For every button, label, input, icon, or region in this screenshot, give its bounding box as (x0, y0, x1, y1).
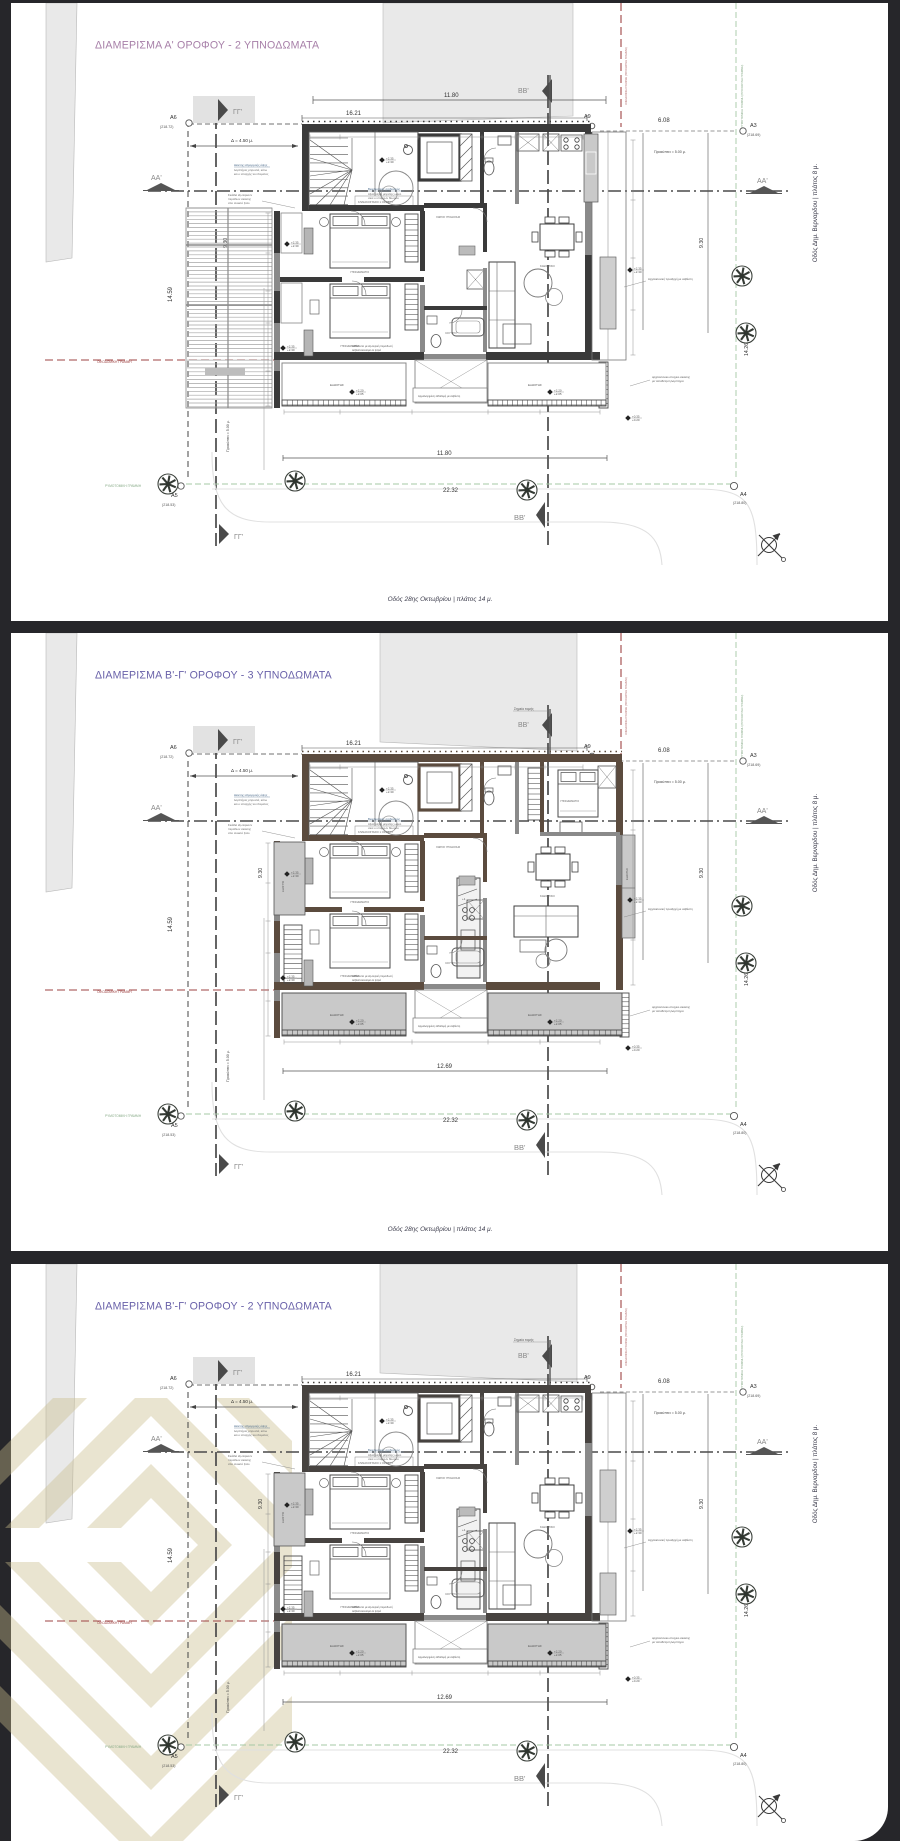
svg-text:Αρμολογημένη λιθοδομή με ασβέσ: Αρμολογημένη λιθοδομή με ασβέστη (418, 1024, 461, 1028)
svg-text:ΒΒ': ΒΒ' (518, 88, 529, 95)
svg-text:με τοποθετηση λαμπτηρα: με τοποθετηση λαμπτηρα (652, 379, 684, 383)
svg-text:σκια ο υπαρχων θεωρειο: σκια ο υπαρχων θεωρειο (368, 826, 399, 830)
svg-text:ασβεστοκονίαμα σε ψηλό: ασβεστοκονίαμα σε ψηλό (352, 1609, 382, 1613)
svg-text:ΕΞΩΣΤΗΣ: ΕΞΩΣΤΗΣ (282, 1511, 285, 1523)
svg-text:Α3: Α3 (750, 753, 757, 759)
svg-text:ΑΑ': ΑΑ' (151, 1436, 162, 1443)
svg-text:(218.80): (218.80) (733, 1762, 746, 1766)
svg-text:Α6: Α6 (170, 1376, 177, 1382)
svg-text:11.80: 11.80 (444, 93, 459, 99)
svg-text:+0.20: +0.20 (632, 1679, 640, 1683)
svg-text:και ο υπαρχής του δώματος: και ο υπαρχής του δώματος (234, 802, 269, 806)
svg-text:ΑΑ': ΑΑ' (757, 808, 768, 815)
svg-text:ΒΒ': ΒΒ' (514, 1143, 526, 1152)
svg-text:6.08: 6.08 (658, 1379, 670, 1385)
svg-text:ΡΥΜΟΤΟΜΙΚΗ ΓΡΑΜΜΗ (ΠΡΟΣΩΡΙΝΗ Γ: ΡΥΜΟΤΟΜΙΚΗ ΓΡΑΜΜΗ (ΠΡΟΣΩΡΙΝΗ ΓΡΑΜΜΗ) (740, 65, 744, 128)
svg-text:Οδός Δημ. Βερναρδου | πλάτος: Οδός Δημ. Βερναρδου | πλάτος 8 μ. (812, 164, 819, 263)
svg-text:14.59: 14.59 (168, 1547, 174, 1563)
svg-text:+2.05: +2.05 (554, 1653, 562, 1657)
svg-text:(218.69): (218.69) (747, 763, 760, 767)
svg-text:16.21: 16.21 (346, 741, 362, 747)
svg-text:+2.30: +2.30 (386, 160, 394, 164)
svg-text:+2.05: +2.05 (554, 392, 562, 396)
svg-text:ΡΥΜΟΤΟΜΙΚΗ ΓΡΑΜΜΗ: ΡΥΜΟΤΟΜΙΚΗ ΓΡΑΜΜΗ (105, 1114, 142, 1118)
svg-text:ΥΠΝΟΔΩΜΑΤΙΟ: ΥΠΝΟΔΩΜΑΤΙΟ (560, 799, 579, 803)
svg-text:9.30: 9.30 (699, 1499, 705, 1509)
svg-text:(218.69): (218.69) (747, 1394, 760, 1398)
svg-text:Βιοκλιματικός σχεδιασμός: Βιοκλιματικός σχεδιασμός (368, 1448, 401, 1452)
svg-text:και ο υπαρχής του δώματος: και ο υπαρχής του δώματος (234, 172, 269, 176)
svg-text:Α4: Α4 (740, 492, 747, 498)
svg-text:ΟΙΚΟΔΟΜΙΚΗ ΓΡΑΜΜΗ (ΠΡΟΣΩΡΙΝΗ Γ: ΟΙΚΟΔΟΜΙΚΗ ΓΡΑΜΜΗ (ΠΡΟΣΩΡΙΝΗ ΓΡΑΜΜΗ) (624, 47, 628, 105)
svg-text:9.30: 9.30 (258, 1499, 264, 1509)
svg-text:ΓΓ': ΓΓ' (234, 1795, 243, 1802)
svg-text:11.80: 11.80 (437, 451, 452, 457)
svg-text:ΓΓ': ΓΓ' (233, 1370, 242, 1377)
svg-text:Α9: Α9 (584, 1375, 591, 1381)
svg-text:ΡΥΜΟΤΟΜΙΚΗ ΓΡΑΜΜΗ (ΠΡΟΣΩΡΙΝΗ Γ: ΡΥΜΟΤΟΜΙΚΗ ΓΡΑΜΜΗ (ΠΡΟΣΩΡΙΝΗ ΓΡΑΜΜΗ) (740, 695, 744, 758)
svg-text:(218.80): (218.80) (733, 501, 746, 505)
svg-text:ΥΠΝΟΔΩΜΑΤΙΟ: ΥΠΝΟΔΩΜΑΤΙΟ (350, 900, 369, 904)
svg-text:ΚΑΘΙΣΤΙΚΟ: ΚΑΘΙΣΤΙΚΟ (540, 264, 556, 268)
svg-text:Προκύπτει = 5.00 μ.: Προκύπτει = 5.00 μ. (226, 1050, 230, 1082)
svg-text:Α3: Α3 (750, 123, 757, 129)
svg-text:Λιθόκτιστο με εξωτερική περσιδ: Λιθόκτιστο με εξωτερική περσιδωτή (352, 344, 393, 348)
svg-text:Προκύπτει = 5.00 μ.: Προκύπτει = 5.00 μ. (654, 780, 686, 784)
svg-text:+1: +1 (462, 897, 466, 901)
svg-text:(218.53): (218.53) (162, 1133, 175, 1137)
svg-text:Αρμολογημένη λιθοδομή με ασβέσ: Αρμολογημένη λιθοδομή με ασβέστη (418, 394, 461, 398)
svg-text:ΓΓ': ΓΓ' (234, 1164, 243, 1171)
svg-text:(218.53): (218.53) (162, 1764, 175, 1768)
svg-text:Α3: Α3 (750, 1384, 757, 1390)
svg-text:ΑΑ': ΑΑ' (151, 175, 162, 182)
svg-text:9.30: 9.30 (258, 868, 264, 878)
svg-text:ΔΙΑΜΕΡΙΣΜΑ Β'-Γ' ΟΡΟΦΟΥ - 2 ΥΠ: ΔΙΑΜΕΡΙΣΜΑ Β'-Γ' ΟΡΟΦΟΥ - 2 ΥΠΝΟΔΩΜΑΤΑ (95, 1301, 333, 1313)
svg-text:ΟΙΚΟΔΟΜΙΚΗ ΓΡΑΜΜΗ (ΠΡΟΣΩΡΙΝΗ Γ: ΟΙΚΟΔΟΜΙΚΗ ΓΡΑΜΜΗ (ΠΡΟΣΩΡΙΝΗ ΓΡΑΜΜΗ) (624, 677, 628, 735)
svg-text:Α5: Α5 (171, 493, 178, 499)
svg-text:Α6: Α6 (170, 115, 177, 121)
svg-text:Α5: Α5 (171, 1123, 178, 1129)
svg-text:ΑΑ': ΑΑ' (757, 1439, 768, 1446)
svg-text:Α4: Α4 (740, 1753, 747, 1759)
svg-text:+2.30: +2.30 (634, 270, 642, 274)
svg-text:ΟΙΚΟΔΟΜΙΚΗ ΓΡΑΜΜΗ: ΟΙΚΟΔΟΜΙΚΗ ΓΡΑΜΜΗ (97, 990, 132, 994)
svg-text:+2.30: +2.30 (634, 900, 642, 904)
svg-text:ΓΓ': ΓΓ' (234, 534, 243, 541)
svg-text:ΟΙΚΟΔΟΜΙΚΗ ΓΡΑΜΜΗ: ΟΙΚΟΔΟΜΙΚΗ ΓΡΑΜΜΗ (97, 1621, 132, 1625)
svg-text:ΡΥΜΟΤΟΜΙΚΗ ΓΡΑΜΜΗ (ΠΡΟΣΩΡΙΝΗ Γ: ΡΥΜΟΤΟΜΙΚΗ ΓΡΑΜΜΗ (ΠΡΟΣΩΡΙΝΗ ΓΡΑΜΜΗ) (740, 1326, 744, 1389)
svg-text:ΕΞΩΣΤΗΣ: ΕΞΩΣΤΗΣ (282, 880, 285, 892)
svg-text:+2.30: +2.30 (386, 790, 394, 794)
svg-text:+2.30: +2.30 (291, 1505, 299, 1509)
svg-text:Προκύπτει = 5.00 μ.: Προκύπτει = 5.00 μ. (226, 1681, 230, 1713)
svg-text:ΚΑΘΙΣΤΙΚΟ: ΚΑΘΙΣΤΙΚΟ (540, 1525, 556, 1529)
svg-text:ΧΩΡΟΣ ΥΠΟΔΟΧΗΣ: ΧΩΡΟΣ ΥΠΟΔΟΧΗΣ (436, 1476, 461, 1480)
svg-text:Δ = 4.50 μ.: Δ = 4.50 μ. (231, 768, 253, 773)
svg-text:+2.30: +2.30 (287, 1609, 295, 1613)
svg-text:Προκύπτει = 5.00 μ.: Προκύπτει = 5.00 μ. (226, 420, 230, 452)
svg-text:Λιθόκτιστο με εξωτερική περσιδ: Λιθόκτιστο με εξωτερική περσιδωτή (352, 974, 393, 978)
svg-text:ΥΠΝΟΔΩΜΑΤΙΟ: ΥΠΝΟΔΩΜΑΤΙΟ (350, 1531, 369, 1535)
svg-text:ΟΙΚΟΔΟΜΙΚΗ ΓΡΑΜΜΗ (ΠΡΟΣΩΡΙΝΗ Γ: ΟΙΚΟΔΟΜΙΚΗ ΓΡΑΜΜΗ (ΠΡΟΣΩΡΙΝΗ ΓΡΑΜΜΗ) (624, 1308, 628, 1366)
svg-text:ΓΓ': ΓΓ' (233, 109, 242, 116)
svg-text:(218.72): (218.72) (160, 125, 173, 129)
svg-text:6.08: 6.08 (658, 118, 670, 124)
svg-text:+2.30: +2.30 (386, 1421, 394, 1425)
svg-text:Οδός 28ης Οκτωβρίου | πλάτος: Οδός 28ης Οκτωβρίου | πλάτος 14 μ. (388, 595, 493, 603)
svg-text:Δ = 4.50 μ.: Δ = 4.50 μ. (231, 1399, 253, 1404)
svg-text:Δείκτης υδρορροής όψης: Δείκτης υδρορροής όψης (234, 793, 268, 797)
svg-text:Σημείο τομής: Σημείο τομής (514, 707, 534, 711)
svg-text:+2.05: +2.05 (356, 1653, 364, 1657)
svg-text:ΚΑΘΙΣΤΙΚΟ: ΚΑΘΙΣΤΙΚΟ (540, 894, 556, 898)
svg-text:ΒΒ': ΒΒ' (514, 513, 526, 522)
svg-text:Α6: Α6 (170, 745, 177, 751)
svg-text:σκια ο υπαρχων θεωρειο: σκια ο υπαρχων θεωρειο (368, 1457, 399, 1461)
svg-text:ΕΞΩΣΤΗΣ: ΕΞΩΣΤΗΣ (528, 383, 542, 387)
svg-text:ασβεστοκονίαμα σε ψηλό: ασβεστοκονίαμα σε ψηλό (352, 978, 382, 982)
svg-text:ΡΥΜΟΤΟΜΙΚΗ ΓΡΑΜΜΗ: ΡΥΜΟΤΟΜΙΚΗ ΓΡΑΜΜΗ (105, 1745, 142, 1749)
svg-text:+2.30: +2.30 (287, 348, 295, 352)
svg-text:απο ανοικτό ξύλο: απο ανοικτό ξύλο (228, 1462, 250, 1466)
svg-text:ΓΓ': ΓΓ' (233, 739, 242, 746)
svg-text:ΒΒ': ΒΒ' (518, 1353, 529, 1360)
svg-text:(218.53): (218.53) (162, 503, 175, 507)
svg-text:Προκύπτει = 5.00 μ.: Προκύπτει = 5.00 μ. (654, 1411, 686, 1415)
svg-text:Δ = 4.50 μ.: Δ = 4.50 μ. (231, 138, 253, 143)
svg-text:+0.20: +0.20 (632, 418, 640, 422)
svg-text:με τοποθετηση λαμπτηρα: με τοποθετηση λαμπτηρα (652, 1640, 684, 1644)
svg-text:+0.20: +0.20 (632, 1048, 640, 1052)
svg-text:ΕΞΩΣΤΗΣ: ΕΞΩΣΤΗΣ (625, 868, 629, 880)
svg-text:Αρχιτεκτονική προεξοχή με ασβέ: Αρχιτεκτονική προεξοχή με ασβέστη (648, 1538, 693, 1542)
svg-text:ΥΠΝΟΔΩΜΑΤΙΟ: ΥΠΝΟΔΩΜΑΤΙΟ (350, 270, 369, 274)
svg-text:ΟΙΚΟΔΟΜΙΚΗ ΓΡΑΜΜΗ: ΟΙΚΟΔΟΜΙΚΗ ΓΡΑΜΜΗ (97, 360, 132, 364)
svg-text:ΕΞΩΣΤΗΣ: ΕΞΩΣΤΗΣ (330, 1013, 344, 1017)
svg-text:Α4: Α4 (740, 1122, 747, 1128)
svg-text:16.21: 16.21 (346, 1372, 362, 1378)
svg-text:ΧΩΡΟΣ ΥΠΟΔΟΧΗΣ: ΧΩΡΟΣ ΥΠΟΔΟΧΗΣ (436, 215, 461, 219)
svg-text:+2.05: +2.05 (356, 1022, 364, 1026)
svg-text:Αρχιτεκτονική προεξοχή με ασβέ: Αρχιτεκτονική προεξοχή με ασβέστη (648, 907, 693, 911)
svg-text:+2.30: +2.30 (287, 978, 295, 982)
svg-text:+2.05: +2.05 (356, 392, 364, 396)
svg-text:(218.80): (218.80) (733, 1131, 746, 1135)
svg-text:ΛΟΥΤΡΟ: ΛΟΥΤΡΟ (445, 331, 457, 335)
svg-text:(218.72): (218.72) (160, 1386, 173, 1390)
svg-text:+2.30: +2.30 (291, 874, 299, 878)
svg-text:+2.30: +2.30 (291, 244, 299, 248)
svg-text:14.26: 14.26 (744, 1604, 750, 1617)
svg-text:(218.72): (218.72) (160, 755, 173, 759)
svg-text:Οδός Δημ. Βερναρδου | πλάτος: Οδός Δημ. Βερναρδου | πλάτος 8 μ. (812, 794, 819, 893)
svg-text:16.21: 16.21 (346, 111, 362, 117)
svg-text:ΕΞΩΣΤΗΣ: ΕΞΩΣΤΗΣ (330, 1644, 344, 1648)
svg-text:22.32: 22.32 (443, 488, 459, 494)
svg-text:Βιοκλιματικός σχεδιασμός: Βιοκλιματικός σχεδιασμός (368, 187, 401, 191)
svg-text:ΔΙΑΜΕΡΙΣΜΑ Β'-Γ' ΟΡΟΦΟΥ - 3 ΥΠ: ΔΙΑΜΕΡΙΣΜΑ Β'-Γ' ΟΡΟΦΟΥ - 3 ΥΠΝΟΔΩΜΑΤΑ (95, 670, 333, 682)
svg-text:απο ανοικτό ξύλο: απο ανοικτό ξύλο (228, 831, 250, 835)
svg-text:9.30: 9.30 (699, 238, 705, 248)
svg-text:ΑΑ': ΑΑ' (757, 178, 768, 185)
svg-text:ΒΒ': ΒΒ' (514, 1774, 526, 1783)
svg-text:Δείκτης υδρορροής όψης: Δείκτης υδρορροής όψης (234, 1424, 268, 1428)
svg-text:ΡΥΜΟΤΟΜΙΚΗ ΓΡΑΜΜΗ: ΡΥΜΟΤΟΜΙΚΗ ΓΡΑΜΜΗ (105, 484, 142, 488)
svg-text:ΒΒ': ΒΒ' (518, 722, 529, 729)
svg-text:Δείκτης υδρορροής όψης: Δείκτης υδρορροής όψης (234, 163, 268, 167)
svg-text:ΕΞΩΣΤΗΣ: ΕΞΩΣΤΗΣ (528, 1644, 542, 1648)
svg-text:(218.69): (218.69) (747, 133, 760, 137)
svg-text:απο ανοικτό ξύλο: απο ανοικτό ξύλο (228, 201, 250, 205)
svg-text:ΛΟΥΤΡΟ: ΛΟΥΤΡΟ (445, 1592, 457, 1596)
svg-text:14.59: 14.59 (168, 286, 174, 302)
svg-text:12.69: 12.69 (437, 1064, 453, 1070)
svg-text:ΕΞΩΣΤΗΣ: ΕΞΩΣΤΗΣ (330, 383, 344, 387)
svg-text:14.26: 14.26 (744, 973, 750, 986)
svg-text:Σημείο τομής: Σημείο τομής (514, 1338, 534, 1342)
svg-text:22.32: 22.32 (443, 1749, 459, 1755)
svg-text:14.59: 14.59 (168, 916, 174, 932)
svg-text:Αρχιτεκτονική προεξοχή με ασβέ: Αρχιτεκτονική προεξοχή με ασβέστη (648, 277, 693, 281)
svg-text:και ο υπαρχής του δώματος: και ο υπαρχής του δώματος (234, 1433, 269, 1437)
svg-text:ΕΞΩΣΤΗΣ: ΕΞΩΣΤΗΣ (528, 1013, 542, 1017)
svg-text:ΑΑ': ΑΑ' (151, 805, 162, 812)
svg-text:Λιθόκτιστο με εξωτερική περσιδ: Λιθόκτιστο με εξωτερική περσιδωτή (352, 1605, 393, 1609)
svg-text:12.69: 12.69 (437, 1695, 453, 1701)
svg-text:14.26: 14.26 (744, 343, 750, 356)
svg-text:+1: +1 (462, 1528, 466, 1532)
svg-text:Βιοκλιματικός σχεδιασμός: Βιοκλιματικός σχεδιασμός (368, 817, 401, 821)
svg-text:Οδός 28ης Οκτωβρίου | πλάτος: Οδός 28ης Οκτωβρίου | πλάτος 14 μ. (388, 1225, 493, 1233)
svg-text:9.30: 9.30 (699, 868, 705, 878)
svg-text:Προκύπτει = 5.00 μ.: Προκύπτει = 5.00 μ. (654, 150, 686, 154)
svg-text:με τοποθετηση λαμπτηρα: με τοποθετηση λαμπτηρα (652, 1009, 684, 1013)
svg-text:ΛΟΥΤΡΟ: ΛΟΥΤΡΟ (445, 961, 457, 965)
svg-text:ΧΩΡΟΣ ΥΠΟΔΟΧΗΣ: ΧΩΡΟΣ ΥΠΟΔΟΧΗΣ (436, 845, 461, 849)
svg-text:Αρμολογημένη λιθοδομή με ασβέσ: Αρμολογημένη λιθοδομή με ασβέστη (418, 1655, 461, 1659)
svg-text:22.32: 22.32 (443, 1118, 459, 1124)
svg-text:6.08: 6.08 (658, 748, 670, 754)
svg-text:Α9: Α9 (584, 744, 591, 750)
svg-text:ασβεστοκονίαμα σε ψηλό: ασβεστοκονίαμα σε ψηλό (352, 348, 382, 352)
svg-text:ΔΙΑΜΕΡΙΣΜΑ Α' ΟΡΟΦΟΥ - 2 ΥΠΝΟΔ: ΔΙΑΜΕΡΙΣΜΑ Α' ΟΡΟΦΟΥ - 2 ΥΠΝΟΔΩΜΑΤΑ (95, 40, 320, 52)
svg-text:+2.05: +2.05 (554, 1022, 562, 1026)
svg-text:σκια ο υπαρχων θεωρειο: σκια ο υπαρχων θεωρειο (368, 196, 399, 200)
svg-text:Οδός Δημ. Βερναρδου | πλάτος: Οδός Δημ. Βερναρδου | πλάτος 8 μ. (812, 1425, 819, 1524)
svg-text:Α5: Α5 (171, 1754, 178, 1760)
svg-text:Α9: Α9 (584, 114, 591, 120)
svg-text:+2.30: +2.30 (634, 1531, 642, 1535)
